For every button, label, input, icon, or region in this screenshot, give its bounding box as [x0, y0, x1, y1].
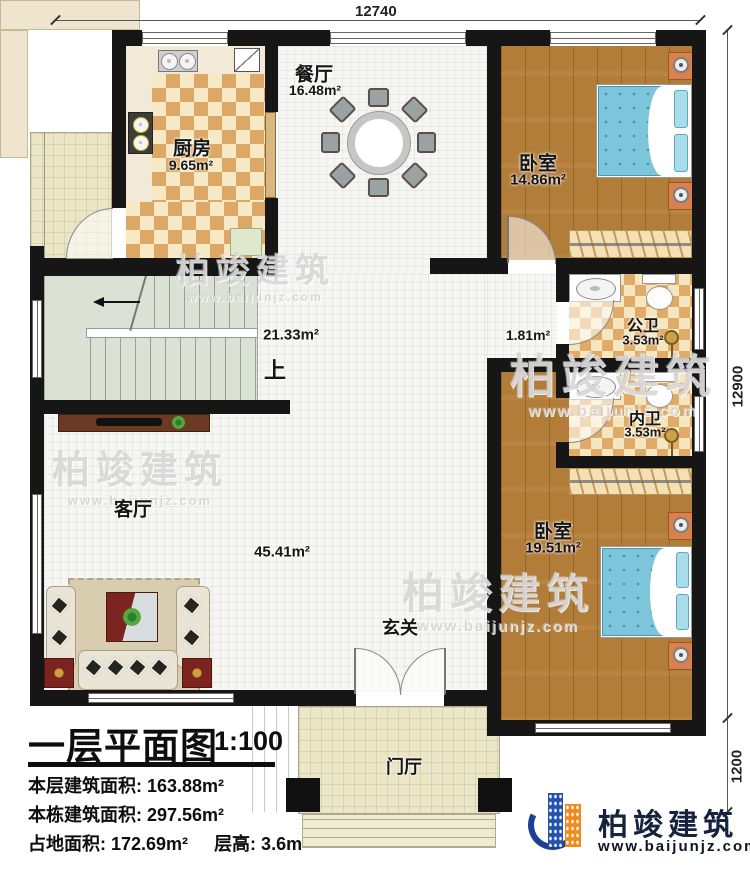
wall — [466, 30, 550, 46]
plant-icon — [123, 608, 141, 626]
kitchen-counter-left — [0, 30, 28, 158]
wall — [487, 358, 501, 736]
kitchen-area: 9.65m² — [169, 157, 213, 173]
stove-burner-1 — [133, 117, 149, 133]
private-bath-shower-arm — [671, 442, 673, 456]
kitchen-sink-basin-right — [179, 53, 196, 70]
living-area: 45.41m² — [254, 544, 310, 561]
public-bath-area: 3.53m² — [622, 333, 663, 348]
bed1-pillow — [674, 134, 688, 172]
stat-story-height: 层高: 3.6m — [214, 834, 302, 854]
window — [32, 494, 42, 634]
window — [535, 723, 671, 733]
stair-treads-upper — [154, 268, 258, 334]
stair-up-label: 上 — [264, 353, 286, 385]
vent-shaft-icon — [234, 48, 260, 72]
stair-direction-line — [104, 301, 140, 303]
dining-chair — [321, 132, 340, 153]
dimension-top-value: 12740 — [352, 3, 400, 20]
dimension-right-lower-value: 1200 — [729, 734, 746, 800]
bedroom1-door-leaf — [507, 216, 509, 263]
wall — [44, 400, 290, 414]
hallway-area: 21.33m² — [263, 327, 319, 344]
entry-label: 玄关 — [382, 614, 418, 640]
wall — [300, 690, 356, 706]
dimension-line-right — [727, 30, 728, 718]
public-bath-toilet-tank — [642, 274, 676, 284]
corridor-floor — [487, 274, 557, 360]
window — [550, 32, 656, 44]
dining-chair — [417, 132, 436, 153]
wall — [265, 198, 278, 260]
kitchen-appliance — [230, 228, 262, 256]
logo-building-blue-icon — [548, 793, 563, 847]
wall — [487, 358, 706, 372]
tv-icon — [96, 418, 162, 426]
window — [88, 693, 234, 703]
bedroom1-wardrobe — [569, 230, 692, 258]
foyer-label: 门厅 — [386, 753, 422, 779]
stat-floor-area: 本层建筑面积: 163.88m² — [28, 772, 224, 798]
public-bath-shower-icon — [664, 330, 679, 345]
lamp-icon — [673, 57, 689, 73]
public-bath-toilet-icon — [646, 286, 673, 310]
bed1-sheet-fold — [648, 86, 672, 176]
window — [694, 288, 704, 350]
stair-handrail — [86, 328, 258, 338]
bedroom2-area: 19.51m² — [525, 540, 581, 557]
stat-footprint-and-height: 占地面积: 172.69m²层高: 3.6m — [28, 830, 302, 856]
dining-chair — [368, 178, 389, 197]
porch-column — [478, 778, 512, 812]
red-mat — [44, 658, 74, 688]
plant-icon — [172, 416, 185, 429]
window — [142, 32, 228, 44]
lamp-icon — [673, 647, 689, 663]
wall — [556, 274, 569, 302]
side-porch-step-line — [44, 132, 45, 264]
porch-column — [286, 778, 320, 812]
stove-burner-2 — [133, 135, 149, 151]
stair-treads-lower — [90, 334, 258, 402]
logo-building-orange-icon — [565, 804, 581, 847]
wall — [112, 30, 126, 208]
dining-area: 16.48m² — [289, 82, 341, 98]
window — [32, 300, 42, 378]
kitchen-counter-top — [0, 0, 140, 30]
wall — [30, 258, 278, 276]
title-underline — [28, 762, 275, 767]
wall — [692, 30, 706, 736]
kitchen-sliding-door — [265, 112, 276, 198]
entry-door-leaf — [444, 648, 446, 694]
private-bath-shower-icon — [664, 428, 679, 443]
bed2-pillow — [676, 594, 689, 630]
window — [330, 32, 466, 44]
bedroom1-area: 14.86m² — [510, 172, 566, 189]
bedroom2-wardrobe — [569, 468, 692, 495]
dimension-line-top — [55, 20, 700, 21]
wall — [556, 456, 706, 468]
wall — [228, 30, 330, 46]
stat-footprint: 占地面积: 172.69m² — [28, 834, 188, 854]
bed2-sheet-fold — [650, 548, 674, 636]
public-bath-sink-icon — [576, 278, 616, 300]
wall — [444, 690, 501, 706]
wall — [487, 46, 501, 258]
stair-direction-arrow-icon — [93, 297, 104, 307]
private-bath-toilet-tank — [642, 372, 676, 382]
dimension-right-value: 12900 — [730, 351, 747, 423]
entry-door-leaf — [354, 648, 356, 694]
living-label: 客厅 — [114, 495, 152, 522]
bed2-pillow — [676, 552, 689, 588]
lamp-icon — [673, 187, 689, 203]
private-bath-area: 3.53m² — [624, 425, 665, 440]
nightstand — [668, 52, 694, 80]
nightstand — [668, 182, 694, 210]
private-bath-sink-icon — [576, 376, 616, 398]
wall — [430, 258, 508, 274]
red-mat — [182, 658, 212, 688]
corridor-area: 1.81m² — [506, 327, 550, 343]
foyer-steps — [302, 814, 496, 848]
stat-building-area: 本栋建筑面积: 297.56m² — [28, 801, 224, 827]
window — [694, 396, 704, 452]
dining-table — [348, 112, 410, 174]
floor-plan-canvas: 柏竣建筑 www.baijunjz.com 柏竣建筑 www.baijunjz.… — [0, 0, 750, 870]
logo-website: www.baijunjz.com — [598, 838, 750, 855]
kitchen-sink-basin-left — [161, 53, 178, 70]
nightstand — [668, 512, 694, 540]
dining-chair — [368, 88, 389, 107]
bed1-pillow — [674, 90, 688, 128]
lamp-icon — [673, 517, 689, 533]
plan-scale: 1:100 — [214, 726, 283, 757]
nightstand — [668, 642, 694, 670]
wall — [556, 258, 706, 274]
public-bath-shower-arm — [671, 344, 673, 358]
wall — [265, 46, 278, 112]
